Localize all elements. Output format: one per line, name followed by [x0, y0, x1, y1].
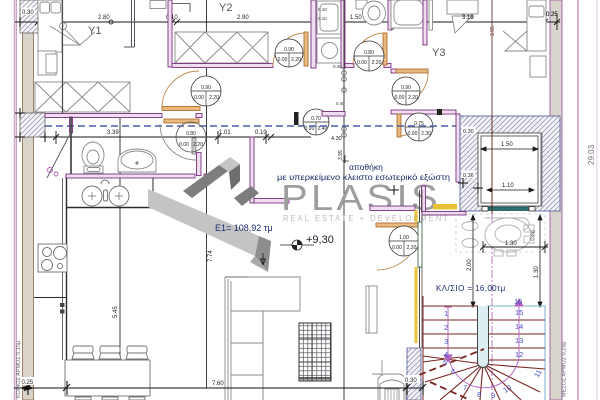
svg-text:2.30: 2.30 — [421, 131, 431, 137]
svg-text:ΚΟΙΝΟΣ ΑΡΜΟΣ 0,15μ: ΚΟΙΝΟΣ ΑΡΜΟΣ 0,15μ — [16, 341, 22, 398]
svg-text:14: 14 — [515, 322, 523, 331]
svg-text:0.90: 0.90 — [305, 126, 315, 132]
svg-text:Y2: Y2 — [219, 2, 232, 14]
svg-text:13: 13 — [515, 336, 523, 345]
svg-text:+9,30: +9,30 — [306, 234, 334, 246]
svg-text:1.30: 1.30 — [505, 241, 517, 247]
svg-text:4.30: 4.30 — [331, 136, 342, 142]
svg-text:6: 6 — [451, 367, 455, 376]
svg-text:0.30: 0.30 — [22, 10, 34, 16]
svg-text:0.00: 0.00 — [357, 60, 367, 66]
svg-text:αποθήκη: αποθήκη — [349, 162, 383, 172]
svg-text:3.19: 3.19 — [462, 15, 474, 21]
svg-text:ΜΕΣΟΣ ΑΡΜΟΣ 0,15μ: ΜΕΣΟΣ ΑΡΜΟΣ 0,15μ — [562, 341, 568, 397]
svg-text:0.30: 0.30 — [463, 129, 474, 135]
svg-text:1.50: 1.50 — [350, 15, 362, 21]
svg-text:0.10: 0.10 — [255, 130, 267, 136]
svg-text:0.00: 0.00 — [392, 245, 402, 251]
svg-text:0.30: 0.30 — [405, 378, 417, 384]
svg-text:2.20: 2.20 — [209, 95, 219, 101]
svg-text:29,03: 29,03 — [587, 144, 596, 165]
svg-text:7.60: 7.60 — [212, 381, 224, 387]
svg-text:0.00: 0.00 — [395, 95, 405, 101]
svg-text:0.10: 0.10 — [318, 16, 327, 21]
svg-text:16: 16 — [514, 297, 522, 306]
svg-text:0.40: 0.40 — [333, 64, 342, 69]
svg-text:2.20: 2.20 — [407, 245, 417, 251]
svg-text:0.00: 0.00 — [194, 95, 204, 101]
svg-text:12: 12 — [515, 350, 523, 359]
svg-text:15: 15 — [515, 308, 523, 317]
svg-text:Y1: Y1 — [88, 25, 101, 37]
svg-text:1.00: 1.00 — [399, 235, 409, 241]
svg-text:3.95: 3.95 — [490, 26, 496, 36]
svg-text:0.25: 0.25 — [546, 12, 558, 18]
svg-text:0.90: 0.90 — [401, 85, 411, 91]
svg-text:0.80: 0.80 — [186, 131, 196, 137]
svg-text:3.95: 3.95 — [338, 150, 344, 160]
svg-text:1.50: 1.50 — [501, 142, 513, 148]
svg-text:0.80: 0.80 — [364, 50, 374, 56]
svg-text:5: 5 — [443, 358, 447, 367]
svg-text:2.20: 2.20 — [193, 142, 203, 148]
svg-text:1.10: 1.10 — [502, 183, 514, 189]
svg-text:2.40: 2.40 — [318, 126, 328, 132]
svg-text:0.40: 0.40 — [336, 101, 345, 106]
svg-text:9: 9 — [491, 391, 495, 400]
svg-text:3: 3 — [444, 337, 448, 346]
svg-text:7: 7 — [463, 383, 467, 392]
svg-text:2.00: 2.00 — [467, 259, 473, 271]
svg-text:1.30: 1.30 — [534, 266, 540, 278]
svg-text:0.36: 0.36 — [463, 173, 474, 179]
svg-text:7.74: 7.74 — [208, 250, 214, 262]
svg-text:0.00: 0.00 — [278, 57, 288, 63]
svg-text:2.20: 2.20 — [372, 60, 382, 66]
svg-text:3.39: 3.39 — [107, 130, 119, 136]
svg-text:8: 8 — [477, 390, 481, 399]
svg-text:0.00: 0.00 — [179, 142, 189, 148]
svg-text:0.90: 0.90 — [201, 85, 211, 91]
svg-text:0.00: 0.00 — [408, 131, 418, 137]
svg-text:2.80: 2.80 — [98, 15, 110, 21]
svg-text:1.01: 1.01 — [219, 130, 231, 136]
svg-text:1: 1 — [444, 309, 448, 318]
svg-text:0.70: 0.70 — [311, 116, 321, 122]
svg-text:0.90: 0.90 — [284, 47, 294, 53]
svg-text:5.45: 5.45 — [113, 306, 119, 318]
svg-text:0.25: 0.25 — [22, 380, 34, 386]
svg-text:2.20: 2.20 — [408, 95, 418, 101]
svg-text:0.10: 0.10 — [318, 7, 327, 12]
svg-text:Y3: Y3 — [432, 47, 445, 59]
svg-text:2.90: 2.90 — [237, 15, 249, 21]
svg-text:E1= 108,92 τμ: E1= 108,92 τμ — [215, 223, 273, 233]
svg-text:ΚΛ/ΣΙΟ = 16,00τμ: ΚΛ/ΣΙΟ = 16,00τμ — [436, 284, 506, 293]
svg-text:2.20: 2.20 — [291, 57, 301, 63]
svg-text:2: 2 — [444, 323, 448, 332]
